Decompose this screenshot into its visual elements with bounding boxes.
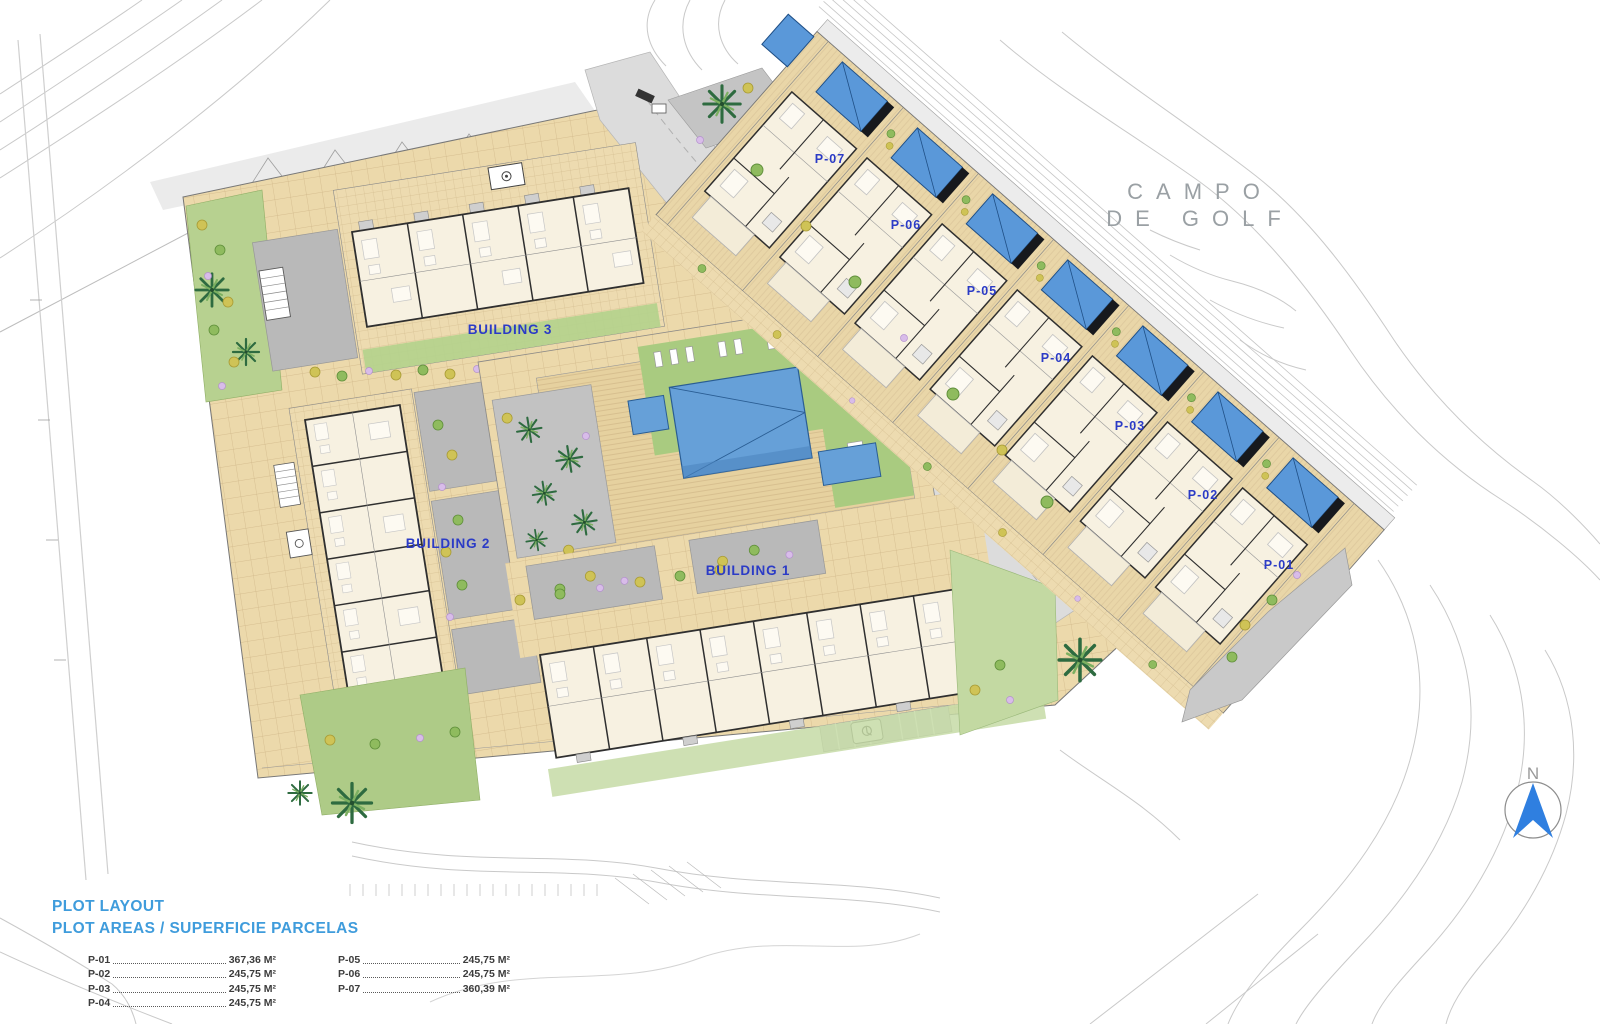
leader-dots bbox=[363, 977, 460, 978]
north-label: N bbox=[1527, 764, 1539, 783]
leader-dots bbox=[363, 992, 460, 993]
plot-id: P-06 bbox=[338, 968, 360, 980]
plot-area-value: 245,75 M² bbox=[229, 968, 276, 980]
golf-label-line1: CAMPO bbox=[1127, 179, 1273, 204]
golf-label-line2: DE GOLF bbox=[1106, 206, 1294, 231]
building-3-label: BUILDING 3 bbox=[468, 322, 553, 337]
legend-entry-p03: P-03 245,75 M² bbox=[88, 980, 276, 995]
leader-dots bbox=[113, 1006, 226, 1007]
leader-dots bbox=[363, 963, 460, 964]
left-road bbox=[18, 34, 108, 880]
building-1-label: BUILDING 1 bbox=[706, 563, 791, 578]
plot-label-p06: P-06 bbox=[891, 218, 921, 232]
plot-id: P-03 bbox=[88, 983, 110, 995]
plot-area-value: 245,75 M² bbox=[229, 983, 276, 995]
leader-dots bbox=[113, 977, 226, 978]
legend-entry-p02: P-02 245,75 M² bbox=[88, 966, 276, 981]
plot-label-p05: P-05 bbox=[967, 284, 997, 298]
plot-label-p01: P-01 bbox=[1264, 558, 1294, 572]
plot-label-p03: P-03 bbox=[1115, 419, 1145, 433]
golf-course-label: CAMPO DE GOLF bbox=[1106, 179, 1294, 231]
plot-id: P-04 bbox=[88, 997, 110, 1009]
legend-entry-p07: P-07 360,39 M² bbox=[338, 980, 510, 995]
legend-entry-p04: P-04 245,75 M² bbox=[88, 995, 276, 1010]
main-pool bbox=[669, 367, 812, 478]
plot-id: P-02 bbox=[88, 968, 110, 980]
plot-label-p07: P-07 bbox=[815, 152, 845, 166]
site-plan-sheet: BUILDING 3 BUILDING 2 BUILDING 1 P-07 P-… bbox=[0, 0, 1600, 1024]
legend-entry-p05: P-05 245,75 M² bbox=[338, 951, 510, 966]
plot-area-value: 245,75 M² bbox=[463, 954, 510, 966]
plot-area-value: 367,36 M² bbox=[229, 954, 276, 966]
legend-entry-p01: P-01 367,36 M² bbox=[88, 951, 276, 966]
legend-title: PLOT LAYOUT bbox=[52, 896, 532, 918]
plot-id: P-05 bbox=[338, 954, 360, 966]
legend-entry-p06: P-06 245,75 M² bbox=[338, 966, 510, 981]
site-plan-drawing: BUILDING 3 BUILDING 2 BUILDING 1 P-07 P-… bbox=[0, 0, 1600, 1024]
entry-kiosk bbox=[488, 163, 525, 190]
plot-label-p04: P-04 bbox=[1041, 351, 1071, 365]
plot-label-p02: P-02 bbox=[1188, 488, 1218, 502]
legend: PLOT LAYOUT PLOT AREAS / SUPERFICIE PARC… bbox=[52, 896, 532, 1009]
north-arrow: N bbox=[1505, 764, 1561, 838]
leader-dots bbox=[113, 963, 226, 964]
plot-area-value: 245,75 M² bbox=[229, 997, 276, 1009]
plot-area-value: 360,39 M² bbox=[463, 983, 510, 995]
leader-dots bbox=[113, 992, 226, 993]
legend-entries: P-01 367,36 M² P-02 245,75 M² P-03 245,7… bbox=[52, 951, 532, 1009]
plot-id: P-01 bbox=[88, 954, 110, 966]
plot-id: P-07 bbox=[338, 983, 360, 995]
legend-subtitle: PLOT AREAS / SUPERFICIE PARCELAS bbox=[52, 918, 532, 940]
building-2-label: BUILDING 2 bbox=[406, 536, 491, 551]
plot-area-value: 245,75 M² bbox=[463, 968, 510, 980]
kids-pool bbox=[628, 395, 669, 434]
